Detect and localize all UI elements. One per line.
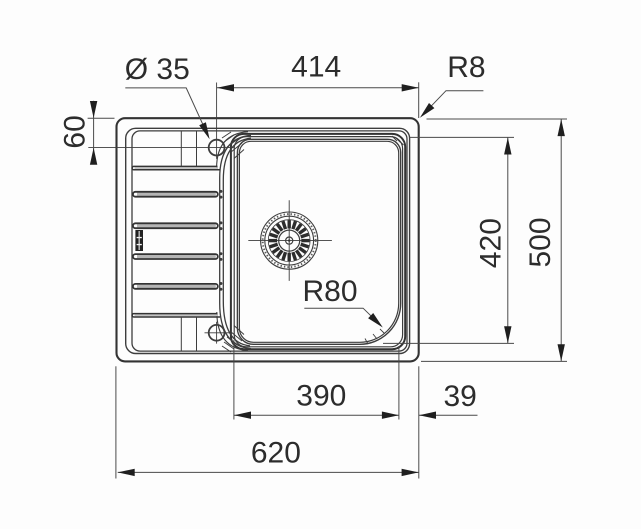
svg-text:39: 39 [444, 380, 477, 413]
svg-text:60: 60 [58, 115, 91, 148]
svg-text:390: 390 [296, 380, 346, 413]
svg-text:Ø 35: Ø 35 [125, 53, 190, 86]
svg-text:420: 420 [475, 218, 508, 268]
svg-text:R8: R8 [447, 51, 485, 84]
svg-text:500: 500 [524, 217, 557, 267]
svg-text:414: 414 [291, 50, 341, 83]
svg-text:620: 620 [251, 437, 301, 470]
svg-text:R80: R80 [302, 275, 357, 308]
